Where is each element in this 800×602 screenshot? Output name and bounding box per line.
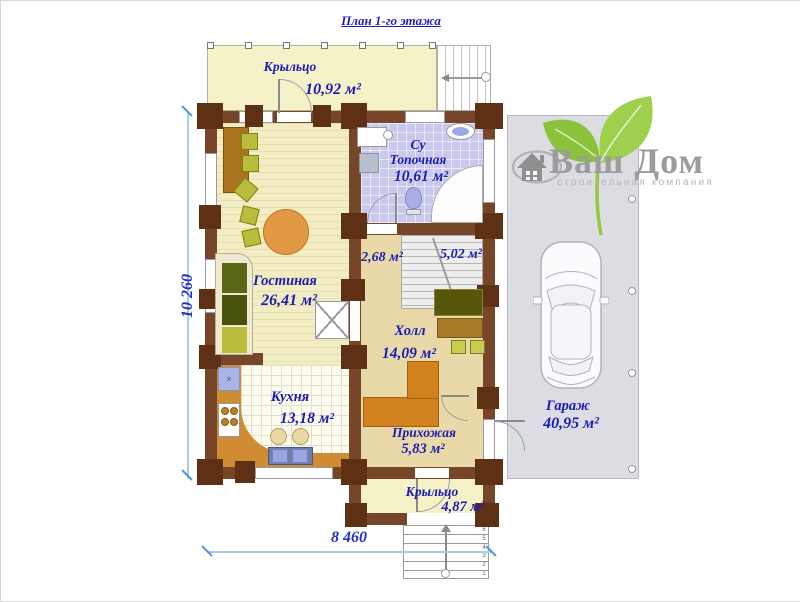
log-end [197,459,223,485]
garage-label: Гараж [518,398,618,415]
porch-post [245,42,252,49]
porch-post [397,42,404,49]
hall-chair [470,340,485,354]
log-end [475,459,503,485]
porch-post [429,42,436,49]
log-end [341,279,365,301]
sofa-cushion [222,327,247,353]
log-end [477,387,499,409]
stairs-start-marker [481,72,491,82]
entry-area: 5,83 м² [373,441,473,458]
log-end [341,213,367,239]
step-number: 1 [480,571,488,577]
porch-post [359,42,366,49]
door-opening [483,419,495,461]
step-number: 3 [480,553,488,559]
round-table [263,209,309,255]
plan-title-link[interactable]: План 1-го этажа [331,13,451,29]
bathroom-label-1: Су [368,137,468,153]
kitchen-table-setting [292,449,308,463]
toilet-tank [406,209,421,215]
window [405,111,445,123]
entry-closet [407,361,439,399]
kitchen-chair [292,428,309,445]
garage-area: 40,95 м² [521,415,621,433]
toilet [405,187,422,209]
kitchen-sink: × [218,367,240,391]
garage-column-marker [628,369,636,377]
log-end [313,105,331,127]
kitchen-table-setting [272,449,288,463]
armchair [242,155,259,172]
armchair [241,133,258,150]
car-icon [533,237,609,393]
log-end [235,461,255,483]
log-end [245,105,263,127]
bathroom-sink-basin [452,127,469,136]
door-opening [415,468,449,478]
porch-top-area: 10,92 м² [283,81,383,99]
porch-top-room [207,45,437,111]
floor-plan-page: План 1-го этажа 6 5 4 3 2 1 [0,0,800,602]
log-end [341,459,367,485]
log-end [197,103,223,129]
step-number: 2 [480,562,488,568]
hall-area: 14,09 м² [359,345,459,363]
window [255,467,333,479]
garage-column-marker [628,287,636,295]
porch-bottom-area: 4,87 м² [413,499,513,516]
stove-burner [221,407,229,415]
porch-bottom-label: Крыльцо [382,484,482,500]
stairs-area: 5,02 м² [416,247,506,263]
window [205,153,217,207]
dimension-label-horizontal: 8 460 [207,529,491,547]
dimension-label-vertical: 10 260 [179,211,197,381]
log-end [199,205,221,229]
hall-label: Холл [360,323,460,340]
dimension-line-horizontal [207,551,491,553]
log-end [345,503,367,527]
porch-post [207,42,214,49]
living-label: Гостиная [235,273,335,290]
log-end [475,103,503,129]
logo-tagline: строительная компания [557,177,714,188]
entry-closet [363,397,439,427]
porch-top-label: Крыльцо [240,59,340,75]
window [483,139,495,203]
kitchen-label: Кухня [240,389,340,406]
bathroom-label-2: Топочная [368,152,468,168]
stairs-direction-line [447,77,483,79]
armchair [241,227,261,247]
under-stairs-area: 2,68 м² [337,250,427,266]
stove-burner [230,418,238,426]
kitchen-chair [270,428,287,445]
hall-sofa [434,289,483,316]
stairs-arrow-icon [441,74,449,82]
door-opening [350,299,360,341]
garage-column-marker [628,465,636,473]
logo-company-name: Ваш Дом [549,140,704,182]
living-area: 26,41 м² [239,292,339,310]
entry-label: Прихожая [374,425,474,441]
bathroom-area: 10,61 м² [371,168,471,186]
door-opening [367,224,397,234]
door-opening [277,112,311,122]
stove-burner [221,418,229,426]
porch-post [321,42,328,49]
log-end [341,103,367,129]
stove-burner [230,407,238,415]
steps-start-marker [441,569,450,578]
kitchen-area: 13,18 м² [257,410,357,428]
porch-post [283,42,290,49]
